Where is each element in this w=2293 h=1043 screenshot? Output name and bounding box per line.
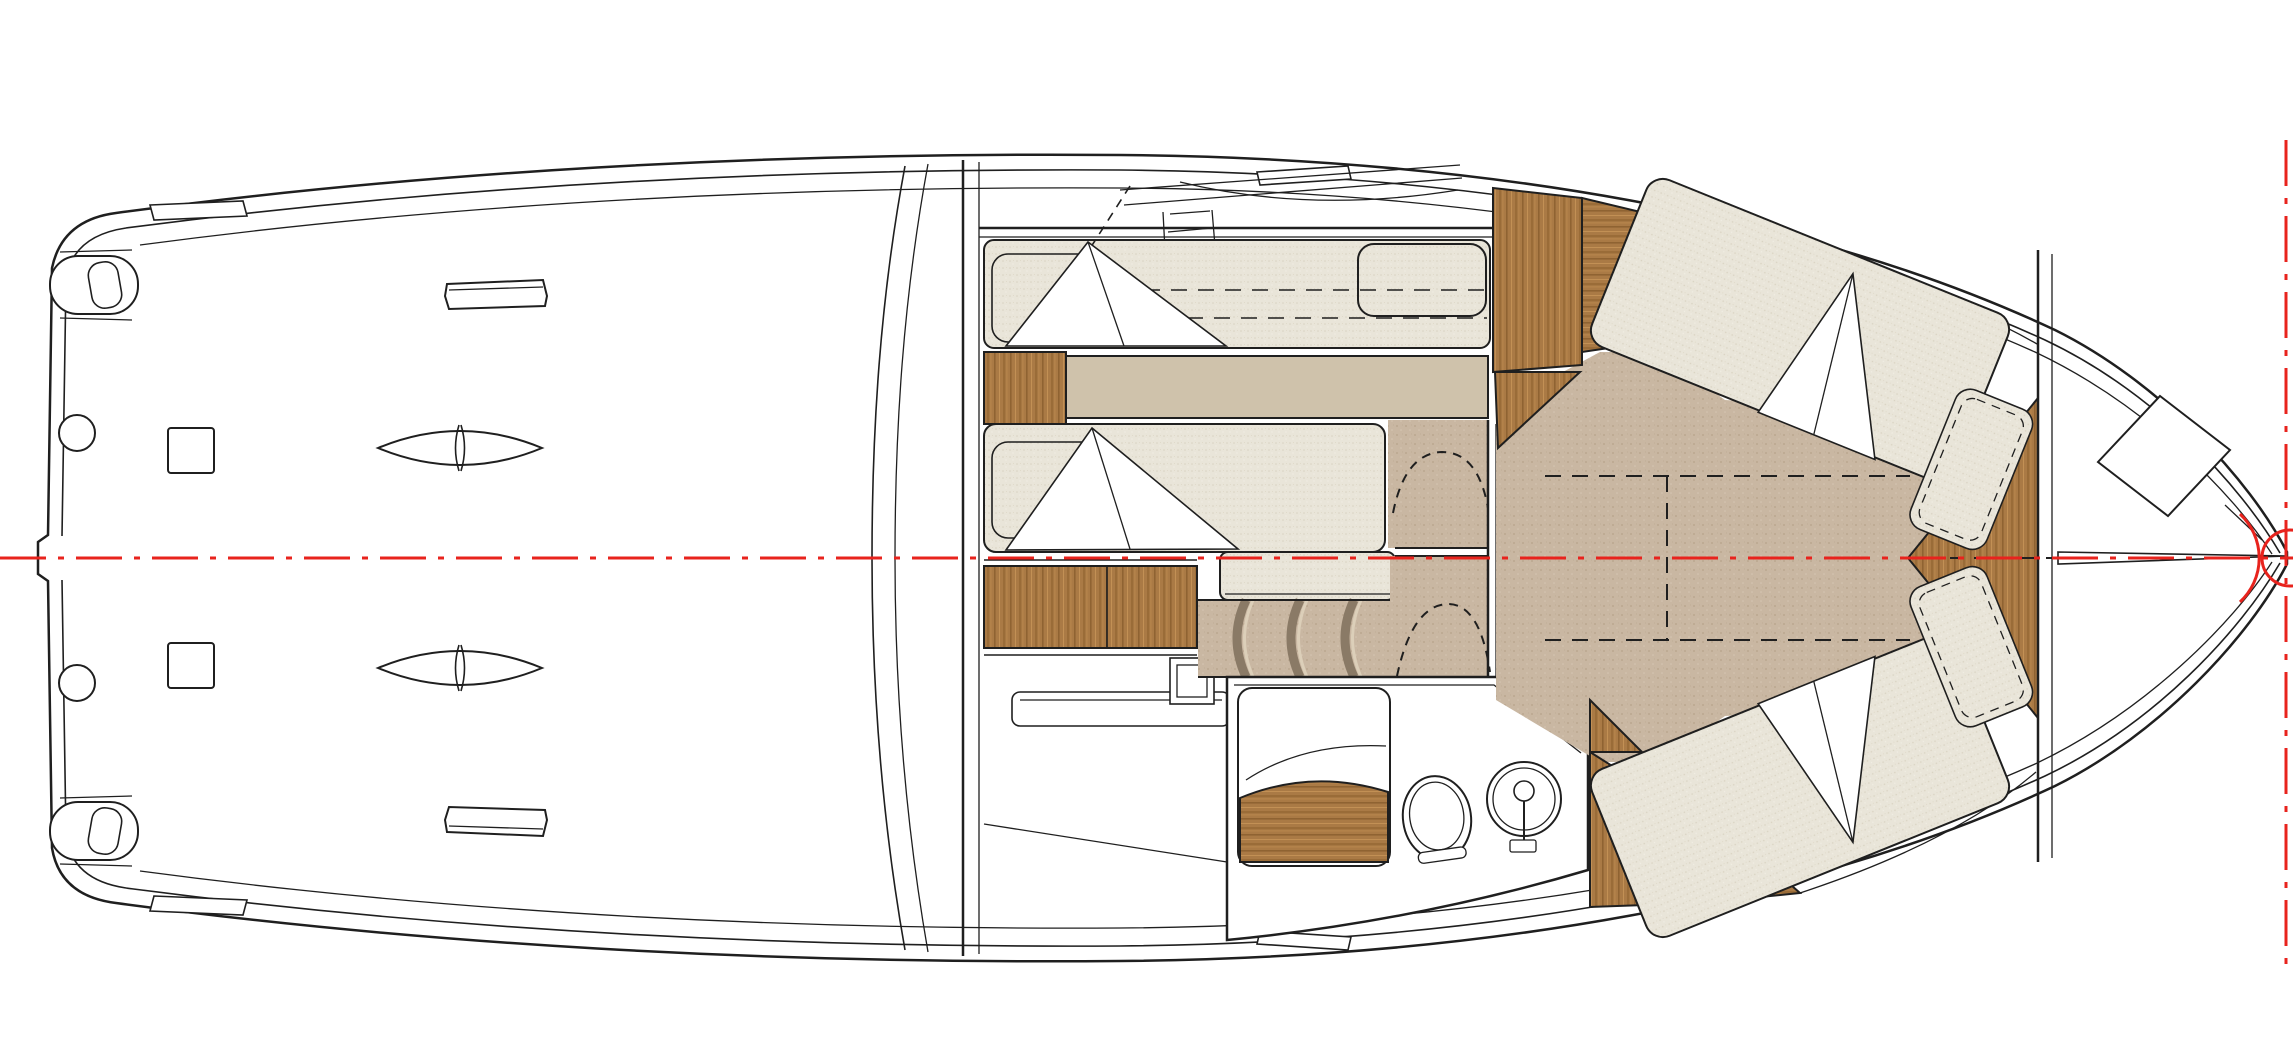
gunwale-pad-aft-bottom — [150, 896, 247, 915]
deck-drain-starboard — [59, 415, 95, 451]
lobby-floor-lower — [1390, 556, 1488, 677]
wardrobe-panel-1 — [1493, 188, 1582, 372]
step-pad-port — [445, 807, 547, 836]
lobby-floor-upper — [1388, 420, 1488, 548]
teak-shower-bench — [1240, 781, 1388, 862]
drawer-bank — [984, 566, 1197, 648]
companionway-stairs — [1198, 600, 1390, 677]
deck-hatch-starboard — [168, 428, 214, 473]
gunwale-pad-aft-top — [150, 201, 247, 220]
nightstand — [984, 352, 1066, 424]
deck-hatch-port — [168, 643, 214, 688]
berth-starboard-backrest — [1358, 244, 1486, 316]
deck-drain-port — [59, 665, 95, 701]
step-pad-starboard — [445, 280, 547, 309]
faucet-knob — [1514, 781, 1534, 801]
berth-platform — [1066, 356, 1488, 418]
floor-plan-stage — [0, 0, 2293, 1043]
faucet-base — [1510, 840, 1536, 852]
boat-floor-plan — [0, 0, 2293, 1043]
